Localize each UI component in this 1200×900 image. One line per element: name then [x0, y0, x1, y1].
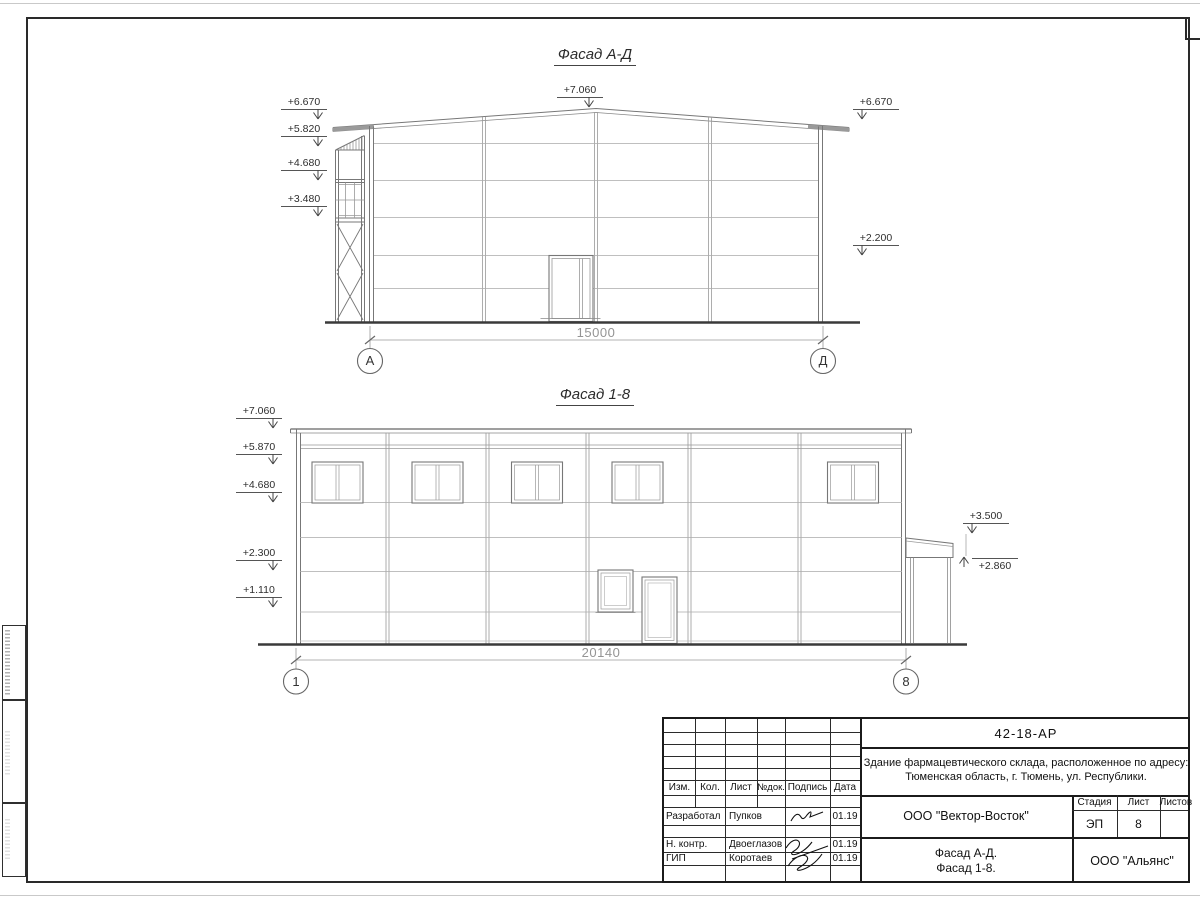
- walls: [370, 126, 823, 322]
- tb-project-line1: Здание фармацевтического склада, располо…: [864, 757, 1189, 771]
- axis-label: 8: [891, 674, 921, 689]
- elevation-mark: +6.670: [281, 96, 327, 110]
- tb-date: 01.19: [830, 807, 860, 825]
- signature: [780, 832, 838, 872]
- tb-sheet-number: 8: [1117, 810, 1160, 837]
- tb-col-dok: №док.: [757, 780, 785, 795]
- elevation-mark: +2.300: [236, 547, 282, 561]
- elevation-mark: +4.680: [236, 479, 282, 493]
- tb-role: Н. контр.: [664, 837, 726, 852]
- canopy: [906, 534, 966, 643]
- facade-ad-title: Фасад А-Д: [520, 46, 670, 66]
- elevation-mark: +2.200: [853, 232, 899, 246]
- stair-tower: [336, 136, 365, 323]
- window: [612, 462, 663, 503]
- window: [412, 462, 463, 503]
- elevation-mark: +5.870: [236, 441, 282, 455]
- window: [512, 462, 563, 503]
- elevation-mark-arrow-icon: [966, 523, 978, 534]
- window: [828, 462, 879, 503]
- tb-client-org: ООО "Альянс": [1072, 837, 1192, 885]
- roof: [333, 109, 849, 132]
- elevation-mark-arrow-icon: [312, 206, 324, 217]
- elevation-mark-arrow-icon: [267, 454, 279, 465]
- elevation-mark: +6.670: [853, 96, 899, 110]
- axis-label: 1: [281, 674, 311, 689]
- signature: [787, 808, 829, 825]
- elevation-mark: +2.860: [972, 558, 1018, 573]
- tb-col-data: Дата: [830, 780, 860, 795]
- elevation-mark-arrow-icon: [267, 597, 279, 608]
- elevation-mark-arrow-icon: [267, 418, 279, 429]
- tower-window: [336, 183, 365, 219]
- tb-sheets-label: Листов: [1160, 795, 1192, 810]
- tb-col-podpis: Подпись: [785, 780, 830, 795]
- elevation-mark-arrow-icon: [267, 492, 279, 503]
- elevation-mark: +4.680: [281, 157, 327, 171]
- tb-doc-number: 42-18-АР: [860, 719, 1192, 747]
- small-window: [596, 570, 636, 613]
- title-block: Изм. Кол. Лист №док. Подпись Дата Разраб…: [662, 717, 1190, 883]
- facade-18-title: Фасад 1-8: [520, 386, 670, 406]
- window: [312, 462, 363, 503]
- dimension-text: 15000: [566, 325, 626, 340]
- elevation-mark-arrow-icon: [958, 556, 970, 567]
- elevation-mark: +7.060: [236, 405, 282, 419]
- tb-name: Пупков: [727, 807, 786, 825]
- tb-stage-value: ЭП: [1072, 810, 1117, 837]
- tb-col-izm: Изм.: [664, 780, 695, 795]
- tb-sheets-value: [1160, 810, 1192, 837]
- wall-panel-joints: [374, 144, 818, 289]
- elevation-mark-arrow-icon: [312, 136, 324, 147]
- tb-col-list: Лист: [725, 780, 757, 795]
- tb-designer-org: ООО "Вектор-Восток": [860, 795, 1072, 837]
- elevation-mark-arrow-icon: [312, 109, 324, 120]
- tb-role: ГИП: [664, 852, 726, 865]
- axis-label: Д: [808, 353, 838, 368]
- tb-sheet-label: Лист: [1117, 795, 1160, 810]
- elevation-mark: +3.500: [963, 510, 1009, 524]
- elevation-mark: +1.110: [236, 584, 282, 598]
- elevation-mark-arrow-icon: [583, 97, 595, 108]
- drawing-sheet: Фасад А-Д +6.670 +5.820 +4.680 +3.480 +7…: [0, 0, 1200, 900]
- cross-bracing: [337, 224, 363, 320]
- elevation-mark-arrow-icon: [312, 170, 324, 181]
- tb-role: Разработал: [664, 807, 726, 825]
- tb-stage-label: Стадия: [1072, 795, 1117, 810]
- elevation-mark: +3.480: [281, 193, 327, 207]
- tb-name: Двоеглазов: [727, 837, 786, 852]
- elevation-mark-arrow-icon: [856, 245, 868, 256]
- tb-col-kol: Кол.: [695, 780, 725, 795]
- parapet: [291, 429, 912, 449]
- elevation-mark-arrow-icon: [856, 109, 868, 120]
- entrance-door-18: [642, 577, 677, 644]
- tb-name: Коротаев: [727, 852, 786, 865]
- axis-label: А: [355, 353, 385, 368]
- elevation-mark-arrow-icon: [267, 560, 279, 571]
- tb-sheet-title-line2: Фасад 1-8.: [936, 861, 995, 876]
- dimension-text: 20140: [571, 645, 631, 660]
- elevation-mark: +5.820: [281, 123, 327, 137]
- elevation-mark: +7.060: [557, 84, 603, 98]
- entrance-door-ad: [541, 256, 601, 322]
- tb-project-line2: Тюменская область, г. Тюмень, ул. Респуб…: [905, 771, 1147, 785]
- tb-sheet-title-line1: Фасад А-Д.: [935, 846, 997, 861]
